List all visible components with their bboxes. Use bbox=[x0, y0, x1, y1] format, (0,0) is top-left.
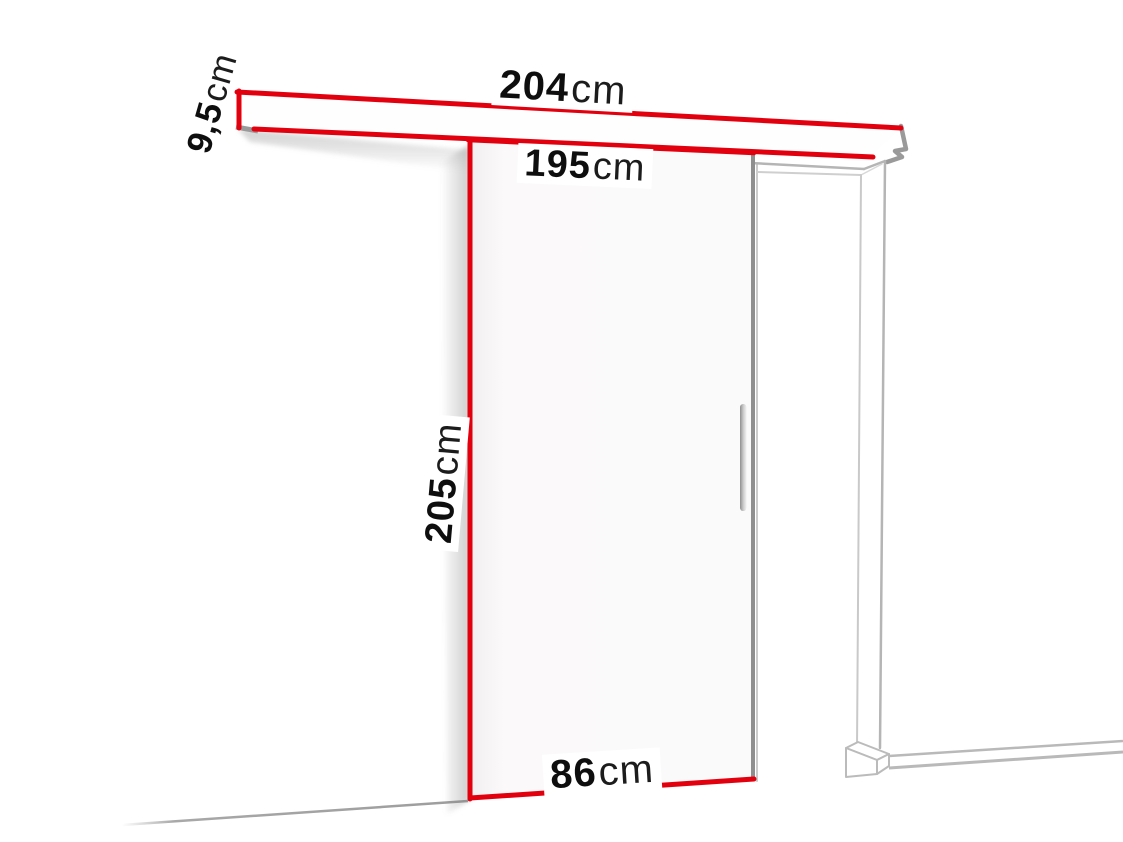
frame-plinth bbox=[846, 742, 889, 777]
dimension-door-height-value: 205 bbox=[418, 475, 466, 545]
door-diagram-drawing bbox=[0, 0, 1123, 842]
door-handle bbox=[740, 404, 747, 511]
door-frame bbox=[751, 161, 885, 781]
door-panel bbox=[468, 140, 754, 799]
dimension-inner-width-unit: cm bbox=[592, 145, 647, 189]
frame-lintel-outer bbox=[751, 163, 864, 169]
dimension-door-width-unit: cm bbox=[597, 747, 655, 794]
dimension-door-height-unit: cm bbox=[424, 421, 470, 477]
dimension-rail-width: 204cm bbox=[491, 63, 634, 113]
dimension-door-width: 86cm bbox=[542, 747, 662, 796]
frame-lintel-inner bbox=[757, 172, 861, 175]
dimension-door-width-value: 86 bbox=[549, 750, 598, 797]
dimension-inner-width: 195cm bbox=[517, 143, 654, 189]
dimension-rail-width-value: 204 bbox=[498, 62, 570, 110]
frame-right-inner-post bbox=[857, 175, 861, 748]
frame-right-outer-post bbox=[880, 161, 885, 748]
floor-line-left bbox=[122, 801, 468, 825]
dimension-inner-width-value: 195 bbox=[524, 142, 592, 187]
diagram-canvas: 204cm 9,5cm 195cm 205cm 86cm bbox=[0, 0, 1123, 842]
dimension-rail-width-unit: cm bbox=[570, 66, 628, 113]
door-face bbox=[470, 140, 752, 799]
